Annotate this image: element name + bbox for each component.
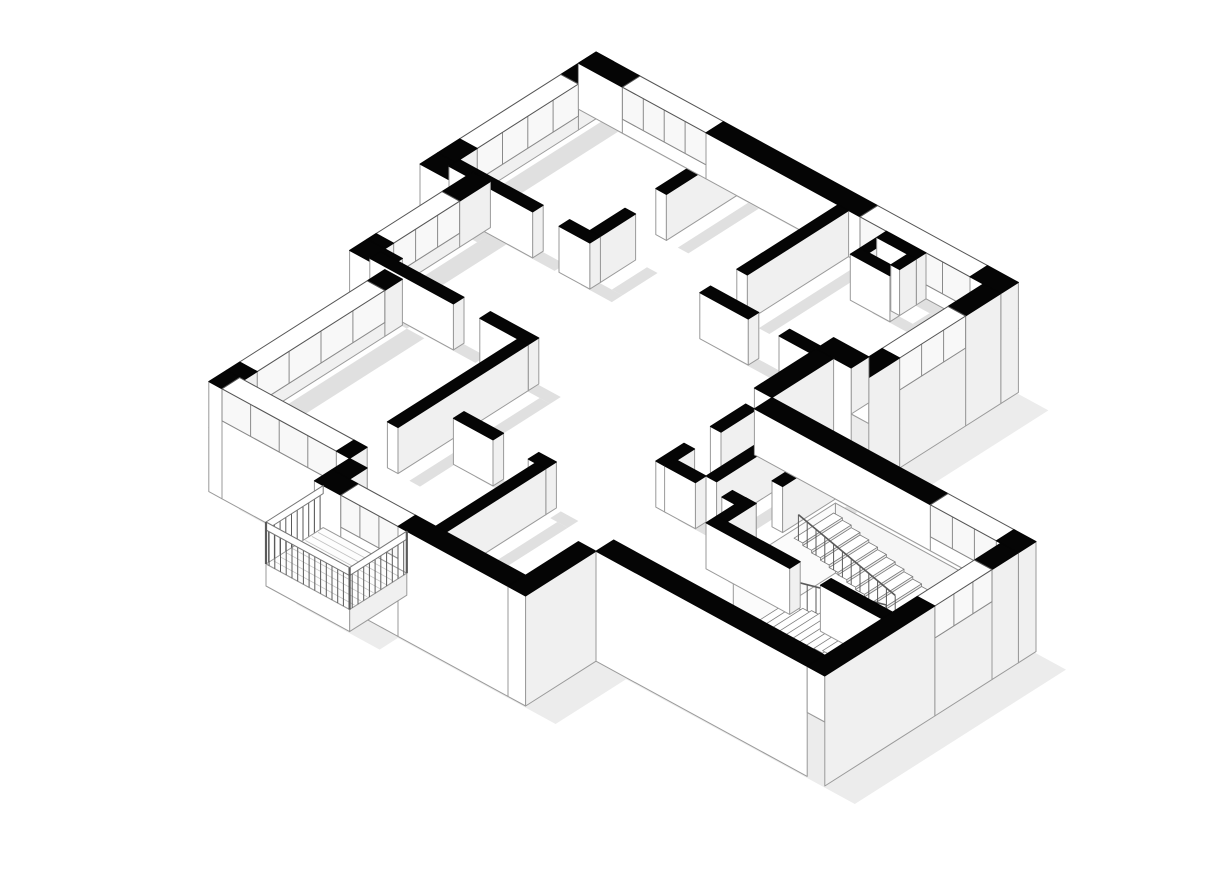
wall-end-face (656, 189, 667, 241)
wall-end-face (533, 205, 544, 258)
wall-end-face (772, 481, 783, 533)
page-canvas (0, 0, 1206, 887)
wall-end-face (695, 476, 706, 529)
wall-end-face (1001, 282, 1019, 403)
wall-end-face (453, 297, 464, 350)
wall-end-face (748, 312, 759, 365)
wall-end-face (590, 236, 601, 289)
wall-end-face (891, 265, 900, 316)
wall-end-face (387, 422, 398, 474)
wall-end-face (546, 462, 557, 515)
wall-end-face (493, 433, 504, 486)
wall-end-face (1018, 542, 1036, 663)
wall-end-face (528, 338, 539, 391)
wall-end-face (508, 586, 526, 706)
wall-duct-east (891, 254, 917, 315)
wall-face (992, 553, 1018, 680)
wall-end-face (916, 253, 926, 305)
wall-end-face (790, 562, 801, 615)
axonometric-floor-plan (0, 0, 1206, 887)
wall-face (966, 294, 1001, 426)
wall-face (209, 382, 222, 499)
